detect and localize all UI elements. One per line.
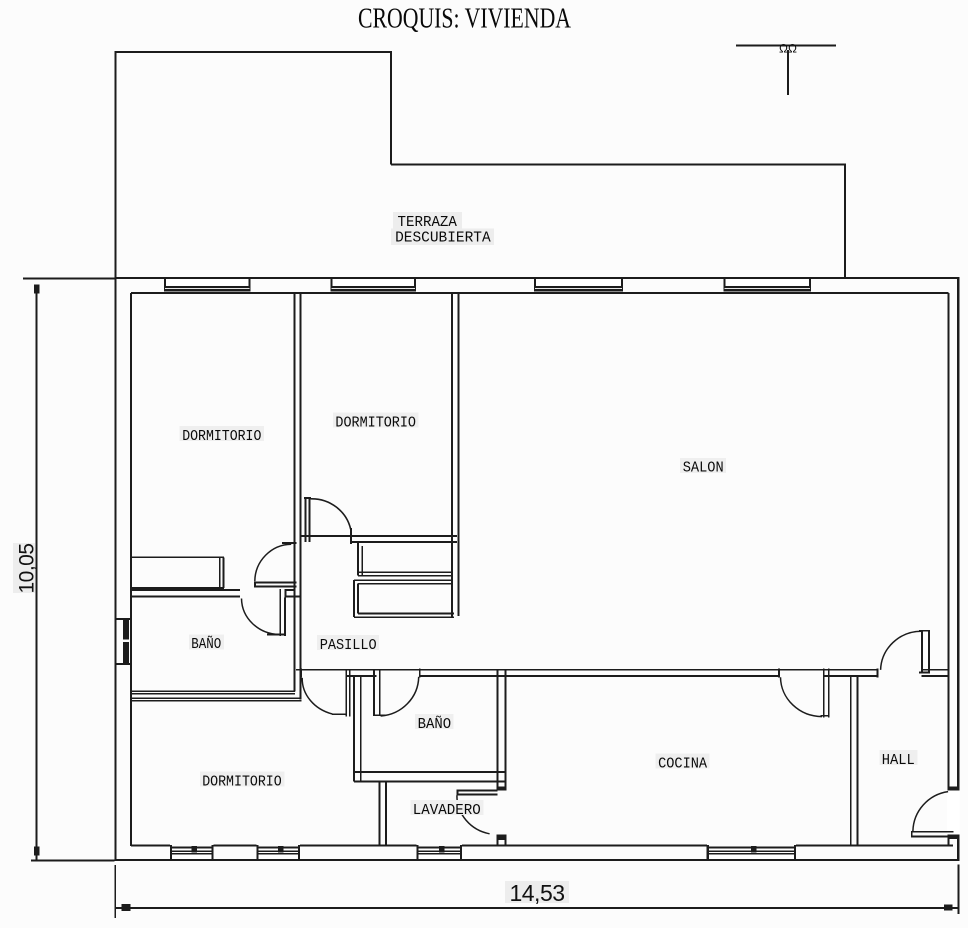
svg-text:HALL: HALL: [882, 752, 915, 769]
svg-text:SALON: SALON: [683, 460, 724, 477]
svg-text:10,05: 10,05: [16, 543, 39, 593]
svg-text:BAÑO: BAÑO: [418, 716, 452, 733]
svg-text:14,53: 14,53: [509, 880, 564, 906]
svg-text:ΩΩ: ΩΩ: [779, 42, 797, 56]
svg-text:DORMITORIO: DORMITORIO: [182, 428, 261, 445]
svg-text:TERRAZA: TERRAZA: [398, 214, 457, 231]
svg-text:PASILLO: PASILLO: [320, 637, 377, 654]
svg-text:CROQUIS: VIVIENDA: CROQUIS: VIVIENDA: [358, 3, 571, 35]
svg-text:COCINA: COCINA: [658, 755, 707, 772]
svg-text:DORMITORIO: DORMITORIO: [335, 415, 416, 432]
svg-text:LAVADERO: LAVADERO: [413, 802, 481, 819]
svg-text:BAÑO: BAÑO: [191, 636, 221, 653]
svg-text:DORMITORIO: DORMITORIO: [202, 773, 282, 790]
svg-text:DESCUBIERTA: DESCUBIERTA: [395, 230, 491, 247]
